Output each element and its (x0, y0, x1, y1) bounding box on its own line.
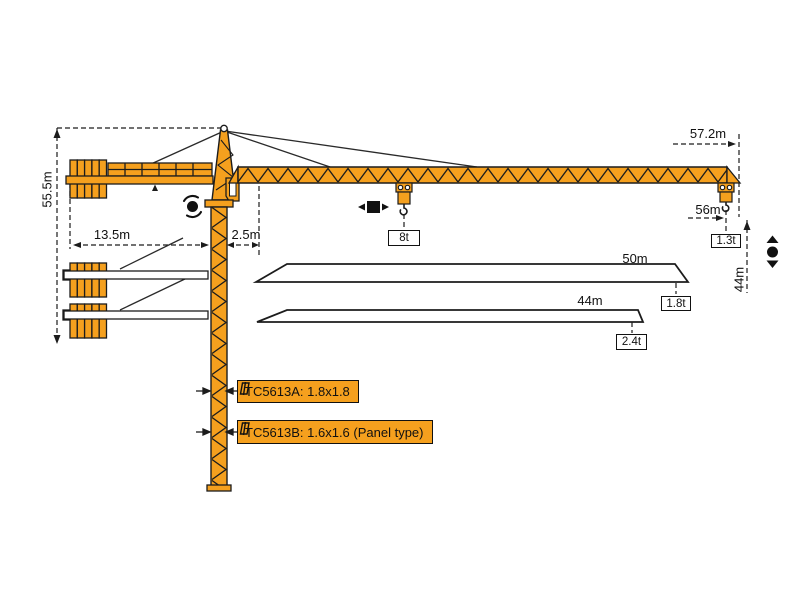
tie-rod-jib-2 (225, 131, 477, 167)
cab-window (230, 182, 237, 196)
counterweight-variant-2 (63, 304, 208, 338)
mast-base (207, 485, 231, 491)
variant-1-beam (64, 271, 208, 279)
mast-section-a-text: TC5613A: 1.8x1.8 (245, 384, 350, 399)
tie-rods (120, 131, 477, 310)
main-jib (229, 167, 740, 183)
tie-rod-counterjib (151, 131, 224, 164)
counterweight-variant-1 (63, 263, 208, 297)
rear-offset-label: 2.5m (226, 228, 266, 241)
max-radius-label: 57.2m (683, 127, 733, 140)
mast-section-b-label: TC5613B: 1.6x1.6 (Panel type) (237, 420, 433, 444)
mast-section-icon (238, 421, 251, 436)
counterjib-radius-label: 13.5m (88, 228, 136, 241)
mast-section-icon (238, 381, 251, 396)
hoist-icon (767, 236, 779, 269)
tip-load-44m-badge: 2.4t (616, 334, 647, 350)
tower-head (212, 125, 239, 201)
variant-2-beam (64, 311, 208, 319)
tip-load-50m-badge: 1.8t (661, 296, 691, 311)
leader-variant-2 (120, 278, 187, 310)
hook-radius-label: 56m (690, 203, 726, 216)
jib-profile-44m (257, 310, 643, 322)
crane-diagram: 55.5m 13.5m 2.5m 57.2m 56m 44m 50m 44m 8… (0, 0, 800, 600)
trolley-mid (396, 183, 412, 215)
trolley-travel-icon (358, 201, 389, 213)
hook-mid (400, 204, 407, 215)
counterjib-beam (66, 176, 213, 184)
jib-profile-50m (256, 264, 688, 282)
right-height-label: 44m (733, 260, 746, 300)
slewing-platform (205, 200, 233, 207)
leader-variant-1 (120, 238, 183, 269)
tie-rod-jib-1 (224, 131, 333, 168)
jib-tip (727, 167, 740, 183)
tie-anchor-marker (152, 185, 158, 192)
mast-section-b-text: TC5613B: 1.6x1.6 (Panel type) (245, 425, 424, 440)
slewing-icon (184, 196, 201, 217)
jib-44m-label: 44m (570, 294, 610, 307)
apex-pulley (221, 125, 227, 131)
mast-lattice (211, 207, 227, 487)
max-load-badge: 8t (388, 230, 420, 246)
tip-load-56m-badge: 1.3t (711, 234, 741, 248)
mast-section-a-label: TC5613A: 1.8x1.8 (237, 380, 359, 403)
jib-lattice (238, 167, 727, 183)
mast (207, 207, 231, 491)
jib-50m-label: 50m (615, 252, 655, 265)
counter-jib (66, 160, 213, 198)
tower-height-label: 55.5m (41, 170, 54, 210)
